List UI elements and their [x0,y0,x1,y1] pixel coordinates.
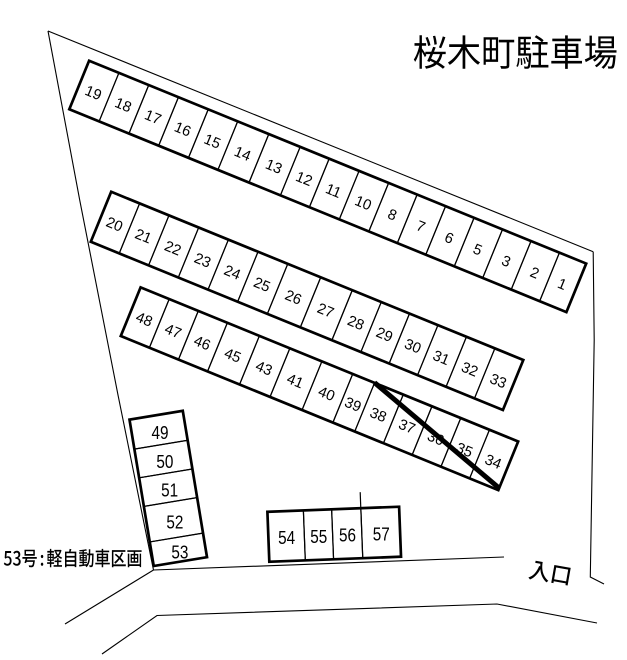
svg-text:57: 57 [373,523,390,544]
svg-text:56: 56 [339,525,356,546]
svg-text:54: 54 [278,527,295,548]
svg-text:49: 49 [152,422,169,443]
svg-text:50: 50 [156,451,173,472]
svg-text:52: 52 [166,512,183,533]
svg-text:53: 53 [171,541,188,562]
svg-text:55: 55 [310,526,327,547]
svg-text:51: 51 [161,480,178,501]
